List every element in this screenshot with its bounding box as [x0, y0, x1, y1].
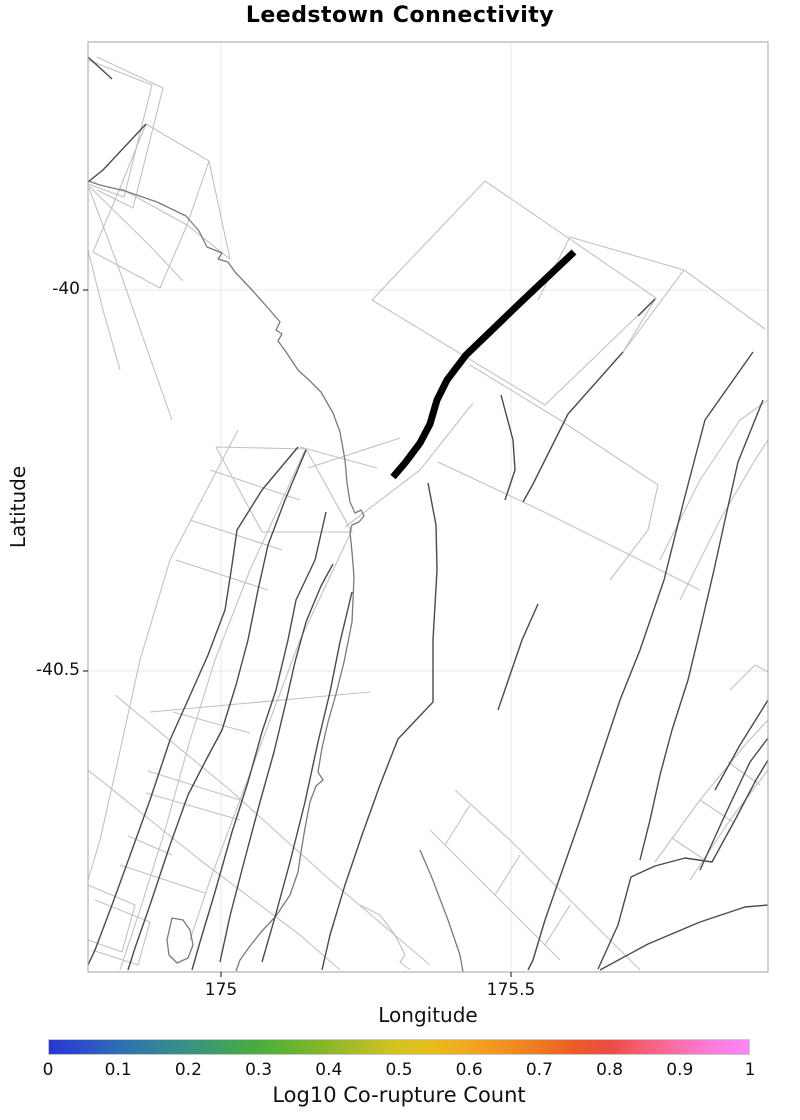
fault-trace-dark	[598, 760, 768, 969]
fault-trace-medium	[420, 850, 463, 972]
colorbar-tick-label: 0.5	[364, 1060, 434, 1080]
colorbar-label: Log10 Co-rupture Count	[48, 1083, 750, 1107]
fault-trace-medium	[167, 918, 193, 963]
fault-trace-light	[690, 770, 768, 880]
fault-trace-light	[372, 181, 656, 405]
fault-trace-light	[146, 793, 240, 820]
fault-trace-dark	[501, 395, 515, 500]
fault-trace-light	[120, 448, 306, 970]
fault-trace-light	[455, 790, 640, 970]
fault-trace-light	[660, 400, 768, 560]
fault-trace-dark	[498, 604, 538, 710]
colorbar-gradient	[48, 1039, 750, 1055]
fault-trace-light	[360, 905, 410, 970]
fault-trace-light	[120, 124, 209, 225]
x-axis-label: Longitude	[88, 1003, 768, 1027]
fault-trace-light	[88, 885, 135, 952]
fault-trace-dark	[88, 447, 298, 965]
colorbar-tick-label: 0.4	[294, 1060, 364, 1080]
fault-trace-light	[438, 462, 700, 590]
fault-trace-light	[173, 712, 250, 733]
fault-trace-dark	[528, 352, 753, 970]
fault-trace-light	[470, 365, 658, 580]
x-tick-label: 175.5	[471, 980, 551, 1000]
figure: Leedstown Connectivity Longitude Latitud…	[0, 0, 800, 1120]
colorbar-tick-label: 0.3	[224, 1060, 294, 1080]
fault-trace-light	[148, 771, 243, 801]
fault-trace-dark	[220, 564, 333, 962]
fault-trace-light	[623, 270, 765, 352]
fault-trace-dark	[640, 400, 763, 860]
colorbar-tick-label: 0.9	[645, 1060, 715, 1080]
y-axis-label: Latitude	[6, 466, 30, 548]
fault-trace-light	[92, 900, 150, 965]
fault-trace-light	[672, 838, 705, 860]
y-tick-label: -40.5	[18, 660, 80, 680]
colorbar-tick-label: 0	[13, 1060, 83, 1080]
fault-trace-light	[97, 57, 163, 208]
colorbar-tick-label: 1	[715, 1060, 785, 1080]
colorbar-tick-label: 0.6	[434, 1060, 504, 1080]
fault-trace-dark	[523, 352, 623, 502]
fault-trace-dark	[128, 450, 306, 970]
colorbar-tick-label: 0.1	[83, 1060, 153, 1080]
x-tick-label: 175	[181, 980, 261, 1000]
fault-trace-light	[150, 692, 370, 712]
colorbar-tick-label: 0.2	[153, 1060, 223, 1080]
fault-trace-light	[445, 805, 470, 845]
fault-trace-light	[700, 800, 733, 822]
fault-trace-light	[495, 855, 520, 895]
fault-trace-light	[730, 665, 768, 690]
colorbar-tick-label: 0.8	[575, 1060, 645, 1080]
fault-trace-light	[187, 161, 230, 259]
fault-trace-dark	[88, 124, 146, 182]
map-svg	[0, 0, 800, 1120]
fault-trace-light	[89, 186, 183, 281]
fault-trace-light	[176, 560, 268, 590]
fault-trace-highlight	[393, 252, 574, 477]
fault-trace-dark	[600, 905, 768, 970]
fault-trace-light	[88, 250, 120, 370]
colorbar-tick-label: 0.7	[504, 1060, 574, 1080]
y-tick-label: -40	[18, 279, 80, 299]
plot-frame	[88, 42, 768, 972]
fault-trace-dark	[192, 512, 326, 970]
fault-trace-dark	[715, 700, 768, 790]
fault-trace-light	[655, 720, 768, 862]
fault-trace-light	[128, 836, 172, 855]
plot-area	[88, 42, 768, 972]
